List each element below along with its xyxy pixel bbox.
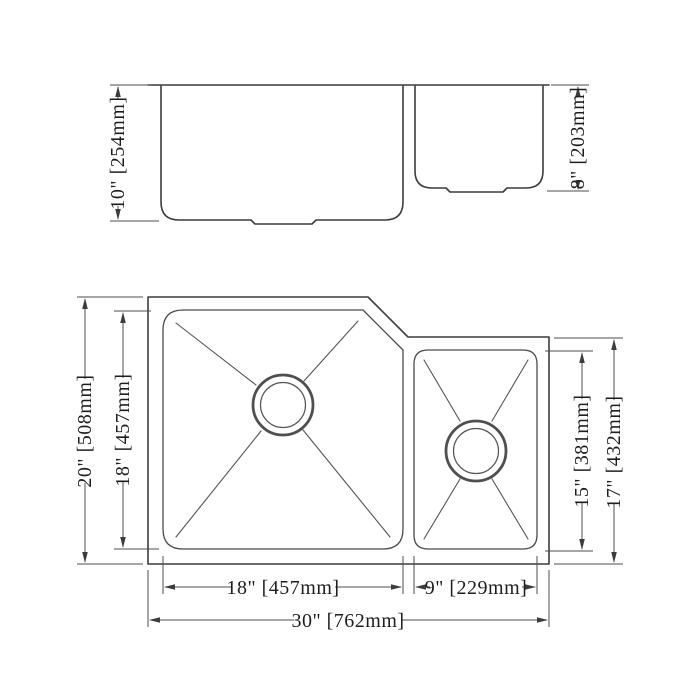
dim-left-bowl-depth: 10" [254mm] (107, 85, 159, 221)
dim-right-bowl-depth: 8" [203mm] (547, 85, 589, 191)
arrowhead-up (120, 312, 126, 323)
crease-line (303, 430, 390, 537)
side-view-large-bowl-profile (161, 86, 403, 224)
plan-outer-outline (148, 297, 549, 564)
crease-line (176, 323, 256, 385)
crease-line (304, 321, 358, 381)
crease-line (424, 360, 460, 421)
dim-label-overall-front-to-back: 20" [508mm] (74, 374, 96, 487)
dim-small-bowl-front-to-back: 15" [381mm] (545, 351, 593, 551)
dim-label-left-bowl-depth: 10" [254mm] (107, 96, 129, 209)
dim-label-right-section-front-to-back: 17" [432mm] (603, 395, 625, 508)
drain-circle-small-outer (446, 421, 506, 481)
arrowhead-up (579, 352, 585, 363)
plan-large-bowl-outline (163, 310, 403, 549)
dim-large-bowl-front-to-back: 18" [457mm] (112, 311, 159, 549)
drain-circle-large-inner (261, 383, 306, 428)
dim-label-large-bowl-width: 18" [457mm] (226, 577, 339, 599)
dim-large-bowl-width: 18" [457mm] (163, 556, 403, 599)
drain-circle-large-outer (253, 375, 313, 435)
crease-line (176, 431, 261, 537)
arrowhead-down (579, 539, 585, 550)
plan-small-bowl-crease-lines (424, 360, 528, 539)
dim-label-large-bowl-front-to-back: 18" [457mm] (112, 373, 134, 486)
dim-label-small-bowl-width: 9" [229mm] (425, 577, 528, 599)
arrowhead-right (391, 584, 402, 590)
side-view: 10" [254mm] 8" [203mm] (107, 85, 589, 224)
dim-label-right-bowl-depth: 8" [203mm] (567, 87, 589, 190)
dim-label-overall-width: 30" [762mm] (291, 610, 404, 632)
plan-large-bowl-crease-lines (176, 321, 390, 537)
crease-line (492, 479, 528, 539)
arrowhead-left (149, 617, 160, 623)
arrowhead-up (115, 86, 121, 97)
drawing-svg: 10" [254mm] 8" [203mm] (0, 0, 700, 700)
arrowhead-right (537, 617, 548, 623)
crease-line (424, 479, 460, 539)
drain-circle-small-inner (454, 429, 499, 474)
plan-view: 20" [508mm] 18" [457mm] 15" [381mm] (74, 297, 625, 632)
arrowhead-down (120, 537, 126, 548)
arrowhead-up (82, 298, 88, 309)
arrowhead-left (164, 584, 175, 590)
side-view-small-bowl-profile (415, 86, 543, 192)
arrowhead-down (115, 209, 121, 220)
arrowhead-up (611, 339, 617, 350)
plan-small-bowl-outline (414, 350, 537, 549)
arrowhead-down (611, 552, 617, 563)
dim-label-small-bowl-front-to-back: 15" [381mm] (571, 394, 593, 507)
crease-line (492, 360, 528, 421)
dim-small-bowl-width: 9" [229mm] (414, 556, 537, 599)
arrowhead-down (82, 552, 88, 563)
sink-technical-drawing: 10" [254mm] 8" [203mm] (0, 0, 700, 700)
